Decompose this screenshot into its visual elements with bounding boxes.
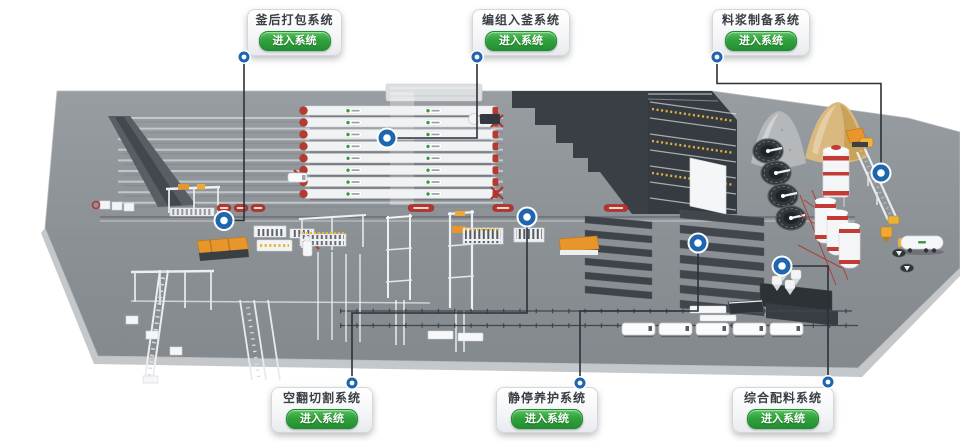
delivery-truck: [770, 323, 803, 337]
line-name-banner: [604, 205, 628, 212]
enter-system-button[interactable]: 进入系统: [259, 31, 331, 51]
autoclave: [299, 189, 499, 199]
brand-badge-icon: [426, 180, 429, 183]
brand-badge-icon: [346, 145, 349, 148]
brand-badge-icon: [426, 192, 429, 195]
line-name-banner: [408, 205, 434, 212]
autoclave: [299, 142, 499, 152]
callout-card-slurry-preparation: 料浆制备系统 进入系统: [712, 9, 810, 56]
scene-marker-tilting-cutting[interactable]: [517, 207, 538, 228]
callout-title: 静停养护系统: [508, 392, 586, 405]
brand-badge-icon: [346, 180, 349, 183]
brand-badge-icon: [346, 109, 349, 112]
enter-system-button[interactable]: 进入系统: [511, 409, 583, 429]
door-shadow: [480, 114, 500, 124]
autoclave: [299, 106, 499, 116]
autoclave: [299, 177, 499, 187]
brand-badge-icon: [346, 121, 349, 124]
autoclave: [299, 130, 499, 140]
brand-badge-icon: [426, 145, 429, 148]
tilting-machine-orange: [559, 236, 599, 255]
scene-marker-slurry-preparation[interactable]: [871, 163, 892, 184]
callout-title: 编组入釜系统: [482, 14, 560, 27]
brand-badge-icon: [426, 157, 429, 160]
packing-machine-orange: [197, 237, 249, 261]
delivery-truck: [659, 323, 692, 337]
scene-marker-aft-autoclave-packing[interactable]: [214, 210, 235, 231]
brand-badge-icon: [426, 109, 429, 112]
line-name-banner: [251, 205, 265, 212]
brand-badge-icon: [426, 121, 429, 124]
brand-badge-icon: [346, 157, 349, 160]
open-autoclave-door: [469, 114, 480, 125]
delivery-truck: [696, 323, 729, 337]
slurry-pool: [768, 184, 798, 208]
autoclave: [299, 154, 499, 164]
brand-badge-icon: [346, 133, 349, 136]
delivery-truck: [733, 323, 766, 337]
enter-system-button[interactable]: 进入系统: [485, 31, 557, 51]
van-windshield: [302, 175, 306, 180]
brand-badge-icon: [346, 169, 349, 172]
callout-card-pre-curing: 静停养护系统 进入系统: [496, 387, 598, 433]
callout-title: 综合配料系统: [744, 392, 822, 405]
slurry-pool: [761, 161, 791, 185]
callout-card-aft-autoclave-packing: 釜后打包系统 进入系统: [247, 9, 342, 56]
callout-title: 空翻切割系统: [283, 392, 361, 405]
delivery-trucks: [622, 323, 803, 337]
plant-overview-page: 釜后打包系统 进入系统 编组入釜系统 进入系统 料浆制备系统 进入系统 空翻切割…: [0, 0, 960, 441]
enter-system-button[interactable]: 进入系统: [747, 409, 819, 429]
callout-title: 料浆制备系统: [722, 14, 800, 27]
scene-marker-pre-curing[interactable]: [688, 233, 709, 254]
brand-badge-icon: [426, 133, 429, 136]
callout-card-integrated-batching: 综合配料系统 进入系统: [732, 387, 834, 433]
autoclave: [299, 166, 499, 176]
white-roof-panel: [690, 158, 726, 214]
brand-badge-icon: [426, 169, 429, 172]
enter-system-button[interactable]: 进入系统: [286, 409, 358, 429]
delivery-truck: [622, 323, 655, 337]
plant-3d-scene: [0, 0, 960, 441]
callout-card-grouping-into-autoclave: 编组入釜系统 进入系统: [472, 9, 570, 56]
enter-system-button[interactable]: 进入系统: [725, 31, 797, 51]
callout-title: 釜后打包系统: [255, 14, 333, 27]
line-name-banner: [493, 205, 514, 212]
slurry-pool: [753, 139, 783, 163]
brand-badge-icon: [346, 192, 349, 195]
callout-card-tilting-cutting: 空翻切割系统 进入系统: [271, 387, 373, 433]
slurry-pool: [776, 206, 806, 230]
scene-marker-integrated-batching[interactable]: [772, 256, 793, 277]
scene-marker-grouping-into-autoclave[interactable]: [377, 128, 398, 149]
line-name-banner: [234, 205, 248, 212]
